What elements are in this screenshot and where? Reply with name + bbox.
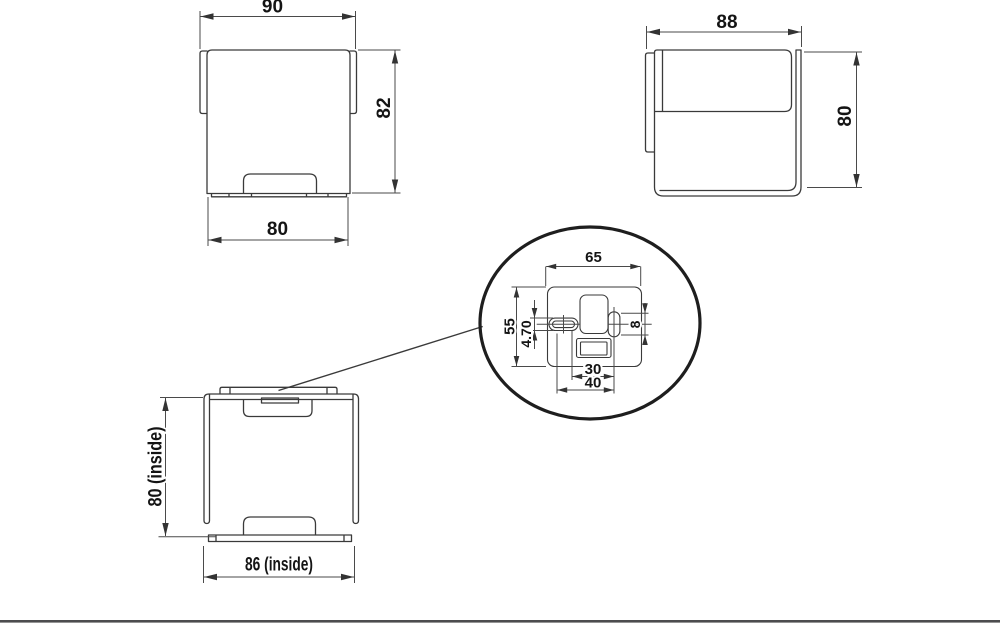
slot-length-dim: 8 <box>627 320 643 328</box>
drawing-canvas: 90 82 80 88 80 80 (inside) 86 (inside) <box>0 0 1000 630</box>
detail-view: 65 55 4.70 8 30 40 <box>279 227 701 419</box>
footer-divider-rule <box>0 620 1000 623</box>
front-view-dimension-lines <box>200 11 401 246</box>
front-bottom-width-dim: 80 <box>267 219 288 240</box>
hole-spacing-outer-dim: 40 <box>585 375 602 392</box>
front-height-dim: 82 <box>374 97 395 118</box>
lower-tab-inner <box>581 342 608 355</box>
plate-width-dim: 65 <box>585 249 602 266</box>
front-view: 90 82 80 <box>200 0 401 246</box>
top-inside-width-dim: 86 (inside) <box>245 555 313 576</box>
side-view: 88 80 <box>646 12 863 196</box>
side-view-outline <box>646 50 802 196</box>
front-top-width-dim: 90 <box>262 0 283 18</box>
top-view: 80 (inside) 86 (inside) <box>146 387 359 583</box>
side-view-dimension-arrows <box>647 29 860 187</box>
side-height-dim: 80 <box>835 105 856 126</box>
technical-drawing-page: 90 82 80 88 80 80 (inside) 86 (inside) <box>0 0 1000 630</box>
top-view-dimension-arrows <box>162 398 354 580</box>
side-width-dim: 88 <box>716 12 737 33</box>
top-view-outline <box>204 387 359 541</box>
plate-height-dim: 55 <box>502 318 519 335</box>
slot-width-dim: 4.70 <box>518 320 534 347</box>
front-view-dimension-arrows <box>201 13 399 243</box>
front-view-outline <box>200 50 357 197</box>
detail-leader-line <box>279 327 483 391</box>
top-inside-height-dim: 80 (inside) <box>146 427 167 507</box>
center-cutout <box>580 295 608 334</box>
